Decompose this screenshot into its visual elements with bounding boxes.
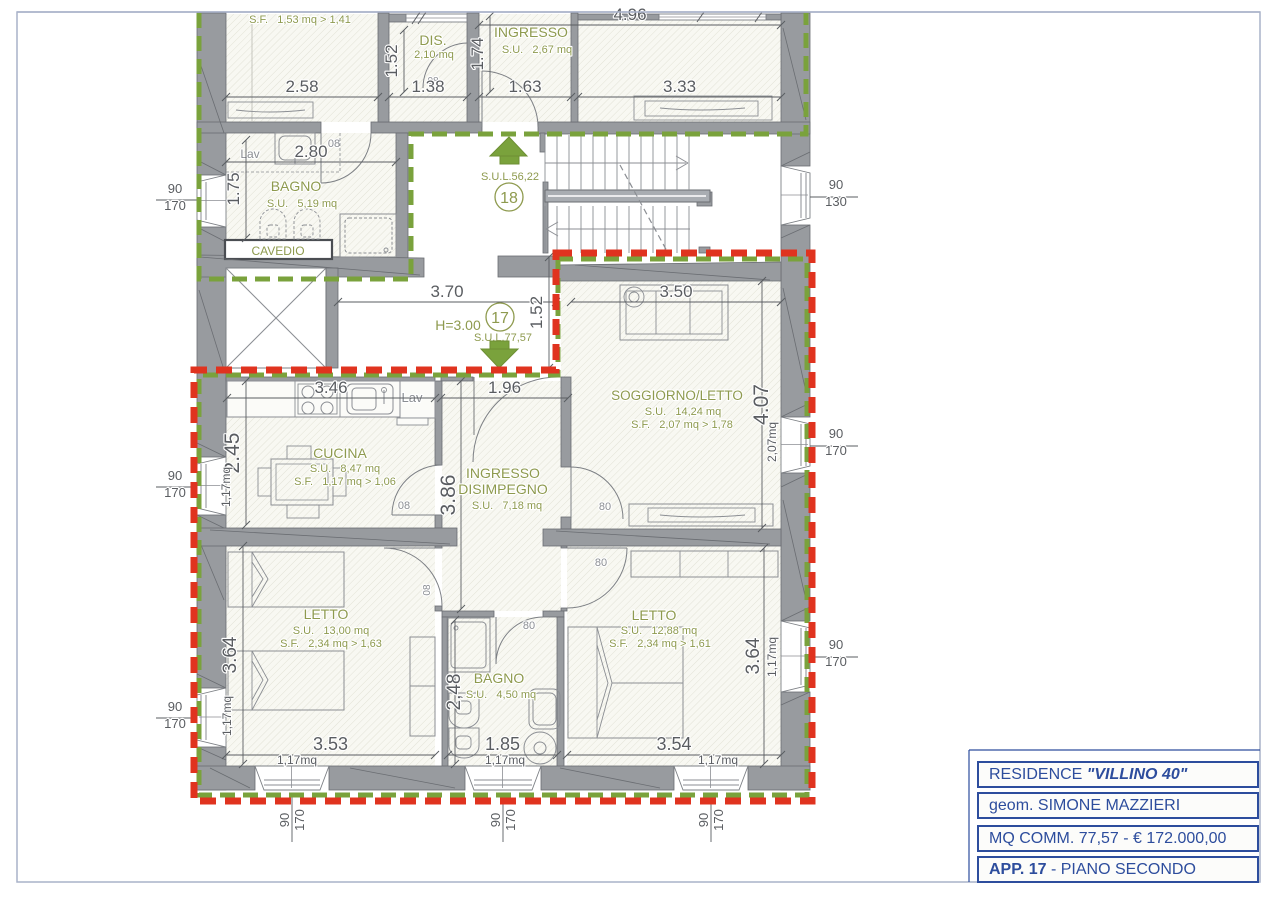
svg-text:3.86: 3.86 bbox=[437, 475, 460, 516]
svg-text:S.F. 2,07 mq > 1,78: S.F. 2,07 mq > 1,78 bbox=[631, 419, 733, 431]
svg-text:INGRESSO: INGRESSO bbox=[466, 465, 540, 481]
svg-text:3.70: 3.70 bbox=[430, 282, 463, 301]
svg-text:1.85: 1.85 bbox=[485, 734, 520, 754]
svg-text:170: 170 bbox=[164, 198, 186, 213]
svg-text:LETTO: LETTO bbox=[304, 606, 349, 622]
svg-text:170: 170 bbox=[711, 809, 726, 831]
svg-text:08: 08 bbox=[422, 584, 433, 596]
svg-text:S.U.L.56,22: S.U.L.56,22 bbox=[481, 171, 539, 183]
svg-text:H=3.00: H=3.00 bbox=[435, 317, 481, 333]
svg-text:S.F. 2,34 mq > 1,63: S.F. 2,34 mq > 1,63 bbox=[280, 638, 382, 650]
svg-text:4.96: 4.96 bbox=[613, 5, 646, 24]
svg-text:S.U. 2,67 mq: S.U. 2,67 mq bbox=[502, 44, 572, 56]
svg-text:80: 80 bbox=[595, 557, 607, 569]
svg-text:170: 170 bbox=[292, 809, 307, 831]
svg-text:S.U. 5,19 mq: S.U. 5,19 mq bbox=[267, 198, 337, 210]
svg-text:17: 17 bbox=[491, 310, 509, 327]
svg-text:4.07: 4.07 bbox=[750, 384, 773, 425]
svg-text:1,17mq: 1,17mq bbox=[220, 696, 234, 736]
svg-text:S.F. 2,34 mq > 1,61: S.F. 2,34 mq > 1,61 bbox=[609, 638, 711, 650]
svg-text:1.74: 1.74 bbox=[468, 37, 487, 70]
svg-text:08: 08 bbox=[328, 138, 340, 150]
svg-text:3.50: 3.50 bbox=[659, 282, 692, 301]
svg-text:3.33: 3.33 bbox=[663, 77, 696, 96]
svg-text:Lav: Lav bbox=[402, 390, 423, 405]
svg-text:90: 90 bbox=[168, 699, 182, 714]
svg-text:1.52: 1.52 bbox=[382, 44, 401, 77]
svg-text:90: 90 bbox=[829, 426, 843, 441]
svg-text:170: 170 bbox=[825, 654, 847, 669]
svg-text:2.80: 2.80 bbox=[294, 142, 327, 161]
svg-text:3.64: 3.64 bbox=[743, 637, 764, 674]
svg-text:18: 18 bbox=[500, 190, 518, 207]
svg-text:LETTO: LETTO bbox=[632, 607, 677, 623]
svg-text:90: 90 bbox=[488, 813, 503, 827]
svg-text:170: 170 bbox=[503, 809, 518, 831]
svg-text:1,17mq: 1,17mq bbox=[485, 753, 525, 767]
svg-text:2,10 mq: 2,10 mq bbox=[414, 49, 454, 61]
svg-text:08: 08 bbox=[398, 500, 410, 512]
svg-text:90: 90 bbox=[829, 177, 843, 192]
svg-text:S.U. 12,88 mq: S.U. 12,88 mq bbox=[621, 625, 697, 637]
svg-text:90: 90 bbox=[696, 813, 711, 827]
svg-text:90: 90 bbox=[829, 637, 843, 652]
svg-text:INGRESSO: INGRESSO bbox=[494, 24, 568, 40]
svg-text:170: 170 bbox=[164, 716, 186, 731]
svg-text:CUCINA: CUCINA bbox=[313, 445, 367, 461]
svg-text:3.64: 3.64 bbox=[220, 636, 241, 673]
svg-text:1,17mq: 1,17mq bbox=[698, 753, 738, 767]
svg-text:2,07mq: 2,07mq bbox=[765, 422, 779, 462]
svg-text:BAGNO: BAGNO bbox=[474, 670, 525, 686]
svg-text:S.U. 14,24 mq: S.U. 14,24 mq bbox=[645, 406, 721, 418]
svg-text:S.U. 4,50 mq: S.U. 4,50 mq bbox=[466, 689, 536, 701]
svg-text:DISIMPEGNO: DISIMPEGNO bbox=[458, 481, 548, 497]
svg-text:S.U. 7,18 mq: S.U. 7,18 mq bbox=[472, 500, 542, 512]
svg-text:130: 130 bbox=[825, 194, 847, 209]
svg-text:CAVEDIO: CAVEDIO bbox=[251, 244, 304, 258]
svg-text:80: 80 bbox=[523, 620, 535, 632]
svg-text:170: 170 bbox=[825, 443, 847, 458]
svg-text:3.53: 3.53 bbox=[313, 734, 348, 754]
svg-text:S.F. 1,53 mq > 1,41: S.F. 1,53 mq > 1,41 bbox=[249, 14, 351, 26]
svg-text:BAGNO: BAGNO bbox=[271, 178, 322, 194]
svg-text:80: 80 bbox=[599, 501, 611, 513]
svg-text:Lav: Lav bbox=[240, 147, 259, 161]
svg-text:3.54: 3.54 bbox=[656, 734, 691, 754]
svg-text:90: 90 bbox=[277, 813, 292, 827]
svg-text:2.58: 2.58 bbox=[285, 77, 318, 96]
svg-text:S.U. 8,47 mq: S.U. 8,47 mq bbox=[310, 463, 380, 475]
svg-text:1,17mq: 1,17mq bbox=[277, 753, 317, 767]
svg-text:90: 90 bbox=[168, 181, 182, 196]
svg-text:1.75: 1.75 bbox=[224, 172, 243, 205]
svg-text:SOGGIORNO/LETTO: SOGGIORNO/LETTO bbox=[611, 388, 743, 403]
svg-text:1.63: 1.63 bbox=[508, 77, 541, 96]
svg-text:3.46: 3.46 bbox=[314, 378, 347, 397]
svg-text:1.52: 1.52 bbox=[527, 296, 546, 329]
svg-text:DIS.: DIS. bbox=[419, 32, 446, 48]
svg-text:90: 90 bbox=[168, 468, 182, 483]
svg-text:1.38: 1.38 bbox=[411, 77, 444, 96]
svg-text:S.U. 13,00 mq: S.U. 13,00 mq bbox=[293, 625, 369, 637]
svg-text:2,48: 2,48 bbox=[444, 674, 465, 711]
svg-text:1,17mq: 1,17mq bbox=[219, 467, 233, 507]
svg-text:1,17mq: 1,17mq bbox=[765, 637, 779, 677]
svg-text:S.F. 1,17 mq > 1,06: S.F. 1,17 mq > 1,06 bbox=[294, 476, 396, 488]
svg-text:1.96: 1.96 bbox=[488, 378, 521, 397]
svg-text:170: 170 bbox=[164, 485, 186, 500]
